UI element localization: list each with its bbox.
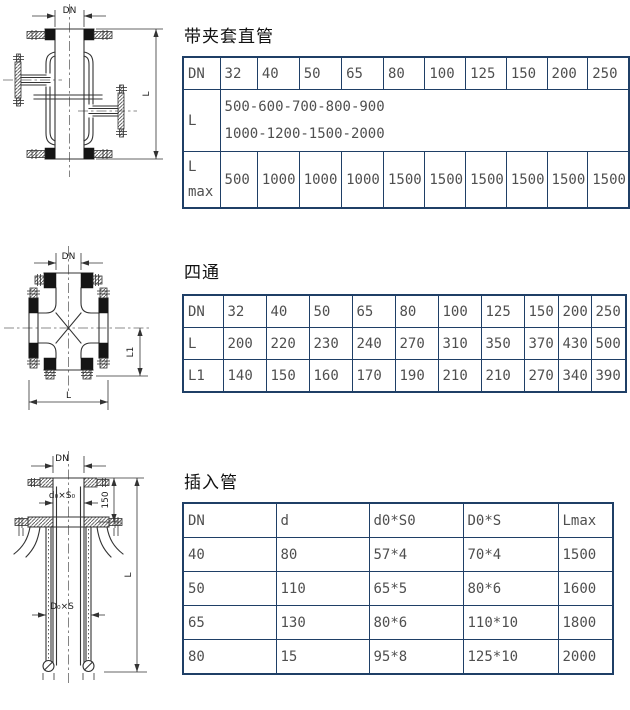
table-cell: d xyxy=(276,503,369,538)
row-header: L1 xyxy=(183,360,223,393)
table-row-l: L 200220230240270310350370430500 xyxy=(183,328,626,360)
row-header: L xyxy=(183,90,220,152)
dim-label-d0s0: d₀×S₀ xyxy=(49,491,76,501)
table-cell: 390 xyxy=(591,360,626,393)
lmax-label-line1: L xyxy=(188,155,218,180)
dim-label-d0s: D₀×S xyxy=(50,602,74,612)
jacketed-pipe-drawing: DN L xyxy=(0,0,180,182)
spec-sheet-page: DN L xyxy=(0,0,630,710)
table-cell: 270 xyxy=(524,360,558,393)
lmax-label-line2: max xyxy=(188,180,218,205)
table-cell: 80*6 xyxy=(463,572,558,606)
table-cell: 140 xyxy=(223,360,266,393)
l-range-line1: 500-600-700-800-900 xyxy=(225,94,626,121)
insertion-pipe-table: DNdd0*S0D0*SLmax 408057*470*41500 501106… xyxy=(182,502,614,675)
table-cell: 50 xyxy=(299,57,341,90)
table-row-dn: DN 3240506580100125150200250 xyxy=(183,57,629,90)
jacketed-pipe-table: DN 3240506580100125150200250 L 500-600-7… xyxy=(182,56,630,209)
table-cell: 190 xyxy=(395,360,438,393)
table-row-l1: L1 140150160170190210210270340390 xyxy=(183,360,626,393)
table-row-l: L 500-600-700-800-900 1000-1200-1500-200… xyxy=(183,90,629,152)
l-range-cell: 500-600-700-800-900 1000-1200-1500-2000 xyxy=(220,90,629,152)
table-row-lmax: L max 5001000100010001500150015001500150… xyxy=(183,152,629,209)
table-cell: 220 xyxy=(266,328,309,360)
table-cell: 70*4 xyxy=(463,538,558,572)
table-cell: 1500 xyxy=(506,152,547,209)
table-cell: D0*S xyxy=(463,503,558,538)
section1-title: 带夹套直管 xyxy=(184,22,274,47)
table-cell: 1500 xyxy=(588,152,629,209)
table-cell: 200 xyxy=(223,328,266,360)
dim-label-dn: DN xyxy=(55,454,69,464)
table-cell: 130 xyxy=(276,606,369,640)
table-cell: 150 xyxy=(266,360,309,393)
table-cell: 1500 xyxy=(547,152,588,209)
table-row-dn: DN 3240506580100125150200250 xyxy=(183,295,626,328)
table-cell: 100 xyxy=(425,57,466,90)
table-cell: 200 xyxy=(558,295,591,328)
table-cell: 150 xyxy=(506,57,547,90)
table-row: 5011065*580*61600 xyxy=(183,572,613,606)
dim-label-l: L xyxy=(124,572,134,577)
table-cell: 100 xyxy=(438,295,481,328)
table-cell: 80 xyxy=(395,295,438,328)
table-cell: 40 xyxy=(266,295,309,328)
table-cell: 350 xyxy=(481,328,524,360)
table-cell: 310 xyxy=(438,328,481,360)
flanges-and-bolts xyxy=(13,29,127,159)
table-cell: 1500 xyxy=(425,152,466,209)
dim-label-dn: DN xyxy=(62,252,76,262)
table-cell: 150 xyxy=(524,295,558,328)
table-cell: 110 xyxy=(276,572,369,606)
table-cell: 340 xyxy=(558,360,591,393)
row-header: L max xyxy=(183,152,220,209)
table-cell: 170 xyxy=(352,360,395,393)
table-cell: 230 xyxy=(309,328,352,360)
table-cell: 32 xyxy=(220,57,257,90)
table-cell: 125 xyxy=(481,295,524,328)
dim-label-l1: L1 xyxy=(126,347,136,358)
table-row: 408057*470*41500 xyxy=(183,538,613,572)
cross-fitting-drawing: DN L1 L xyxy=(0,240,180,420)
table-cell: 50 xyxy=(183,572,276,606)
section3-title: 插入管 xyxy=(184,468,238,493)
table-cell: 250 xyxy=(591,295,626,328)
table-cell: 65 xyxy=(183,606,276,640)
dim-label-l: L xyxy=(142,91,152,96)
dim-label-l: L xyxy=(66,391,71,401)
table-cell: 1000 xyxy=(257,152,299,209)
insertion-pipe-drawing: DN d₀×S₀ 150 D₀×S L xyxy=(0,445,180,690)
table-cell: 500 xyxy=(220,152,257,209)
row-header: L xyxy=(183,328,223,360)
table-header-row: DNdd0*S0D0*SLmax xyxy=(183,503,613,538)
table-cell: 80 xyxy=(384,57,425,90)
table-cell: d0*S0 xyxy=(369,503,463,538)
table-cell: 15 xyxy=(276,640,369,675)
section2-title: 四通 xyxy=(184,258,220,283)
table-cell: 65 xyxy=(342,57,384,90)
table-cell: 1000 xyxy=(342,152,384,209)
table-cell: 1500 xyxy=(384,152,425,209)
table-cell: 210 xyxy=(438,360,481,393)
row-header: DN xyxy=(183,295,223,328)
table-cell: 125 xyxy=(466,57,507,90)
table-cell: 1000 xyxy=(299,152,341,209)
table-cell: 32 xyxy=(223,295,266,328)
table-cell: 1800 xyxy=(558,606,613,640)
table-cell: Lmax xyxy=(558,503,613,538)
table-cell: 240 xyxy=(352,328,395,360)
table-cell: 125*10 xyxy=(463,640,558,675)
table-row: 6513080*6110*101800 xyxy=(183,606,613,640)
table-cell: 250 xyxy=(588,57,629,90)
table-cell: DN xyxy=(183,503,276,538)
table-row: 801595*8125*102000 xyxy=(183,640,613,675)
table-cell: 1600 xyxy=(558,572,613,606)
l-range-line2: 1000-1200-1500-2000 xyxy=(225,121,626,148)
table-cell: 1500 xyxy=(558,538,613,572)
table-cell: 65 xyxy=(352,295,395,328)
table-cell: 160 xyxy=(309,360,352,393)
table-cell: 1500 xyxy=(466,152,507,209)
cross-fitting-table: DN 3240506580100125150200250 L 200220230… xyxy=(182,294,627,393)
table-cell: 430 xyxy=(558,328,591,360)
dim-label-dn: DN xyxy=(63,6,77,16)
dim-label-150: 150 xyxy=(101,491,111,508)
table-cell: 2000 xyxy=(558,640,613,675)
table-cell: 110*10 xyxy=(463,606,558,640)
table-cell: 370 xyxy=(524,328,558,360)
table-cell: 65*5 xyxy=(369,572,463,606)
table-cell: 95*8 xyxy=(369,640,463,675)
table-cell: 270 xyxy=(395,328,438,360)
table-cell: 80*6 xyxy=(369,606,463,640)
table-cell: 80 xyxy=(276,538,369,572)
table-cell: 50 xyxy=(309,295,352,328)
table-cell: 500 xyxy=(591,328,626,360)
table-cell: 40 xyxy=(183,538,276,572)
row-header: DN xyxy=(183,57,220,90)
table-cell: 210 xyxy=(481,360,524,393)
table-cell: 200 xyxy=(547,57,588,90)
table-cell: 80 xyxy=(183,640,276,675)
table-cell: 40 xyxy=(257,57,299,90)
table-cell: 57*4 xyxy=(369,538,463,572)
